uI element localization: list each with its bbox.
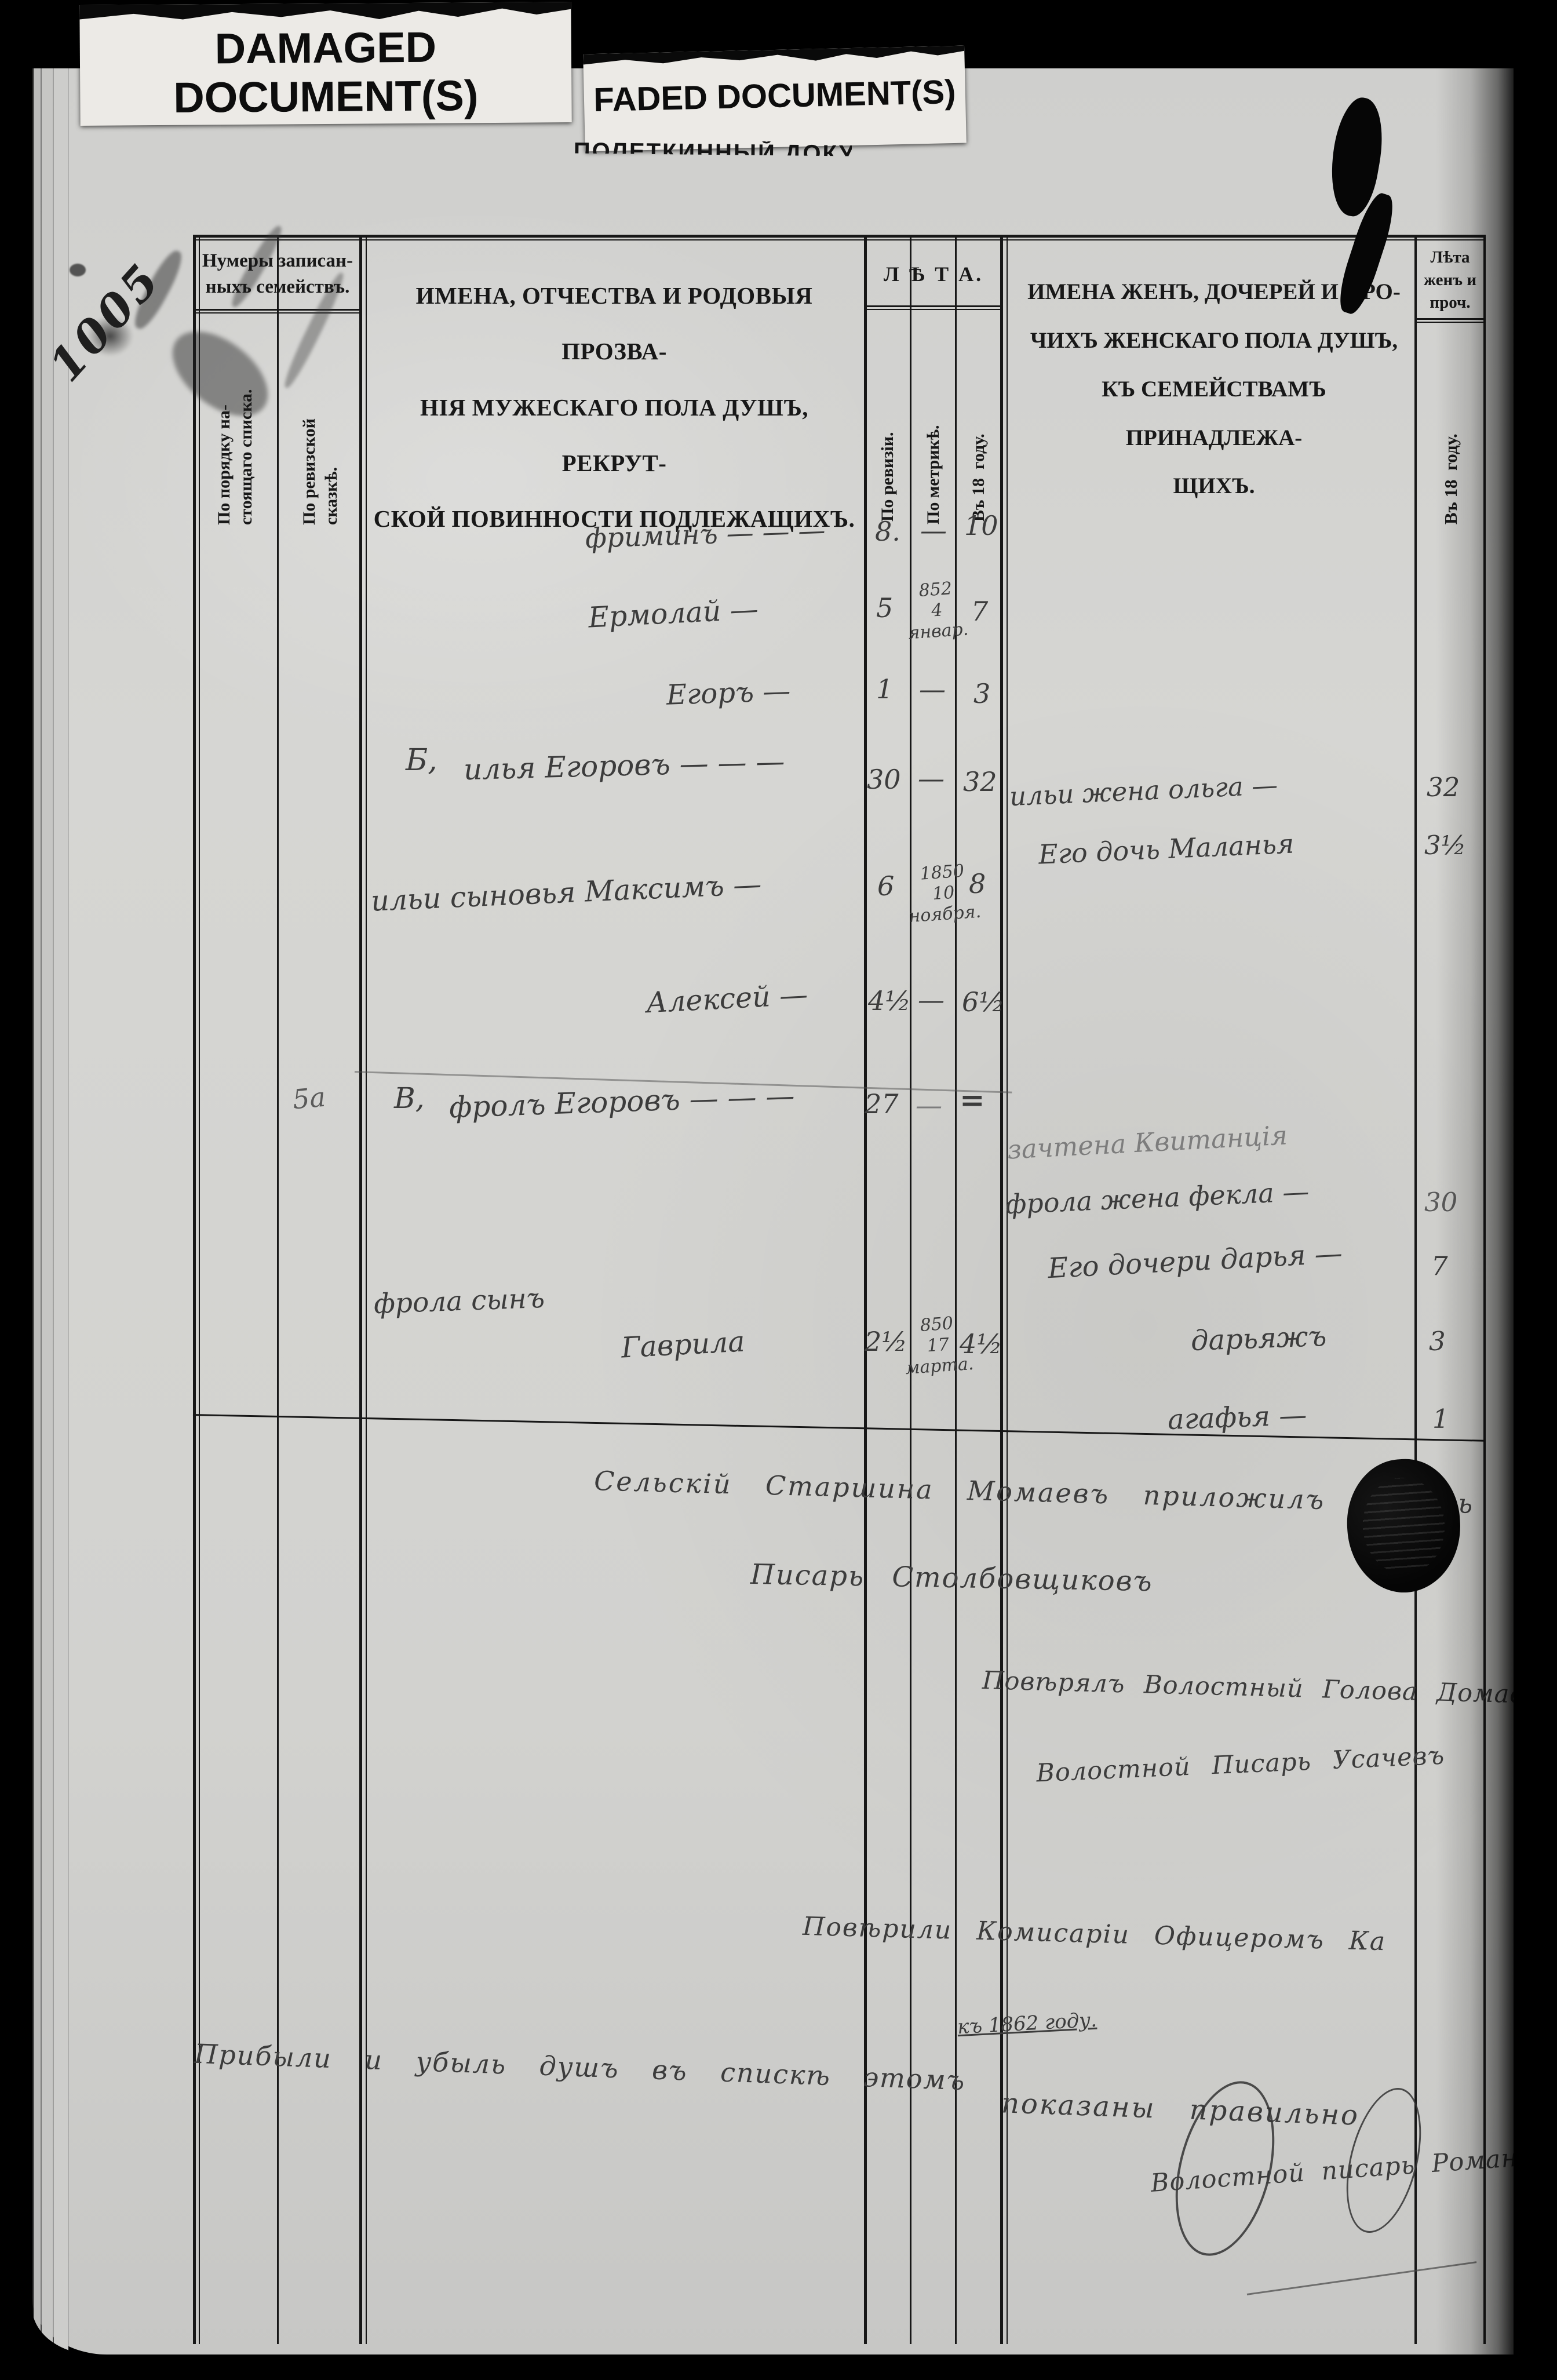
obscured-printed-text: ПОЛЕТКИННЫЙ ДОКУМЕНТ <box>574 139 852 156</box>
damaged-card-line-2: DOCUMENT(S) <box>80 70 572 123</box>
scanned-document-canvas: 1005 Нумеры записан- ныхъ семействъ. ИМЕ… <box>0 0 1557 2380</box>
male-name-row-8a: фрола сынъ <box>373 1282 545 1320</box>
header-ages-group: Л Ѣ Т А. <box>864 262 1003 286</box>
age-by-revision-row-2: 5 <box>876 592 893 624</box>
table-vline <box>864 235 867 2344</box>
page-stack-edge <box>32 68 94 2355</box>
age-by-metric-row-6: — <box>918 984 945 1015</box>
table-vline <box>955 235 957 2344</box>
age-by-revision-row-1: 8. <box>875 516 900 547</box>
header-male-names: ИМЕНА, ОТЧЕСТВА И РОДОВЫЯ ПРОЗВА- НІЯ МУ… <box>368 268 860 547</box>
table-hline <box>193 235 1486 238</box>
table-vline <box>1414 235 1417 2344</box>
age-by-metric-row-7: — <box>916 1089 942 1121</box>
age-by-metric-row-2: 852 4 январ. <box>905 578 969 644</box>
age-by-revision-row-7: 27 <box>865 1088 899 1120</box>
age-by-revision-row-4: 30 <box>867 764 901 795</box>
scan-border-right <box>1514 0 1557 2380</box>
age-in-year-row-2: 7 <box>971 596 988 627</box>
male-name-row-3: Егоръ — <box>666 675 791 711</box>
damaged-card-line-1: DAMAGED <box>80 21 572 74</box>
torn-edge <box>79 2 571 23</box>
obscured-printed-text-glyphs: ПОЛЕТКИННЫЙ ДОКУМЕНТ <box>574 139 852 156</box>
table-hline <box>193 312 362 314</box>
table-vline <box>359 235 362 2344</box>
table-vline <box>277 235 279 2344</box>
table-vline <box>193 235 196 2344</box>
header-col-by-revision: По ревизіи. <box>877 432 899 522</box>
age-by-revision-row-3: 1 <box>876 673 893 705</box>
age-in-year-row-8: 4½ <box>960 1328 1002 1360</box>
age-by-metric-row-3: — <box>919 673 946 705</box>
scan-border-bottom <box>0 2355 1557 2380</box>
age-by-revision-row-8: 2½ <box>865 1326 907 1357</box>
header-col-in-year: Въ 18 году. <box>968 433 990 522</box>
age-in-year-row-5: 8 <box>969 868 986 899</box>
page-curl-shadow <box>1436 68 1514 2355</box>
table-hline <box>864 305 1003 307</box>
age-in-year-row-3: 3 <box>973 678 990 709</box>
age-in-year-row-4: 32 <box>963 766 997 797</box>
table-vline <box>366 235 367 2344</box>
ink-smudge <box>70 264 86 276</box>
table-hline <box>864 309 1003 310</box>
male-name-row-8b: Гаврила <box>621 1325 746 1364</box>
age-in-year-row-6: 6½ <box>962 986 1005 1018</box>
table-vline <box>910 235 911 2344</box>
faded-card-line: FADED DOCUMENT(S) <box>584 72 965 120</box>
age-in-year-row-1: 10 <box>964 510 998 541</box>
table-hline <box>193 309 362 311</box>
female-entry-6: дарьяжъ <box>1190 1320 1327 1357</box>
family-letter-row-7: В, <box>394 1081 425 1115</box>
faded-document-card: FADED DOCUMENT(S) <box>583 46 967 152</box>
header-col-revision-tale: По ревизской сказкѣ. <box>298 418 342 525</box>
header-col-order: По порядку на- стоящаго списка. <box>213 389 257 525</box>
age-by-metric-row-1: — <box>920 515 947 546</box>
header-family-numbers: Нумеры записан- ныхъ семействъ. <box>193 248 362 300</box>
family-number-row-7: 5а <box>291 1081 327 1116</box>
female-entry-7: агафья — <box>1167 1399 1307 1436</box>
age-by-metric-row-4: — <box>918 763 945 794</box>
age-by-revision-row-5: 6 <box>877 870 894 902</box>
age-in-year-row-7: = <box>960 1083 985 1118</box>
damaged-document-card: DAMAGED DOCUMENT(S) <box>79 2 571 126</box>
table-vline <box>199 235 200 2344</box>
table-hline <box>193 239 1486 240</box>
family-letter-row-4: Б, <box>406 743 437 778</box>
torn-edge <box>583 46 964 67</box>
header-col-by-metric: По метрикѣ. <box>922 425 945 524</box>
age-by-revision-row-6: 4½ <box>868 985 911 1016</box>
